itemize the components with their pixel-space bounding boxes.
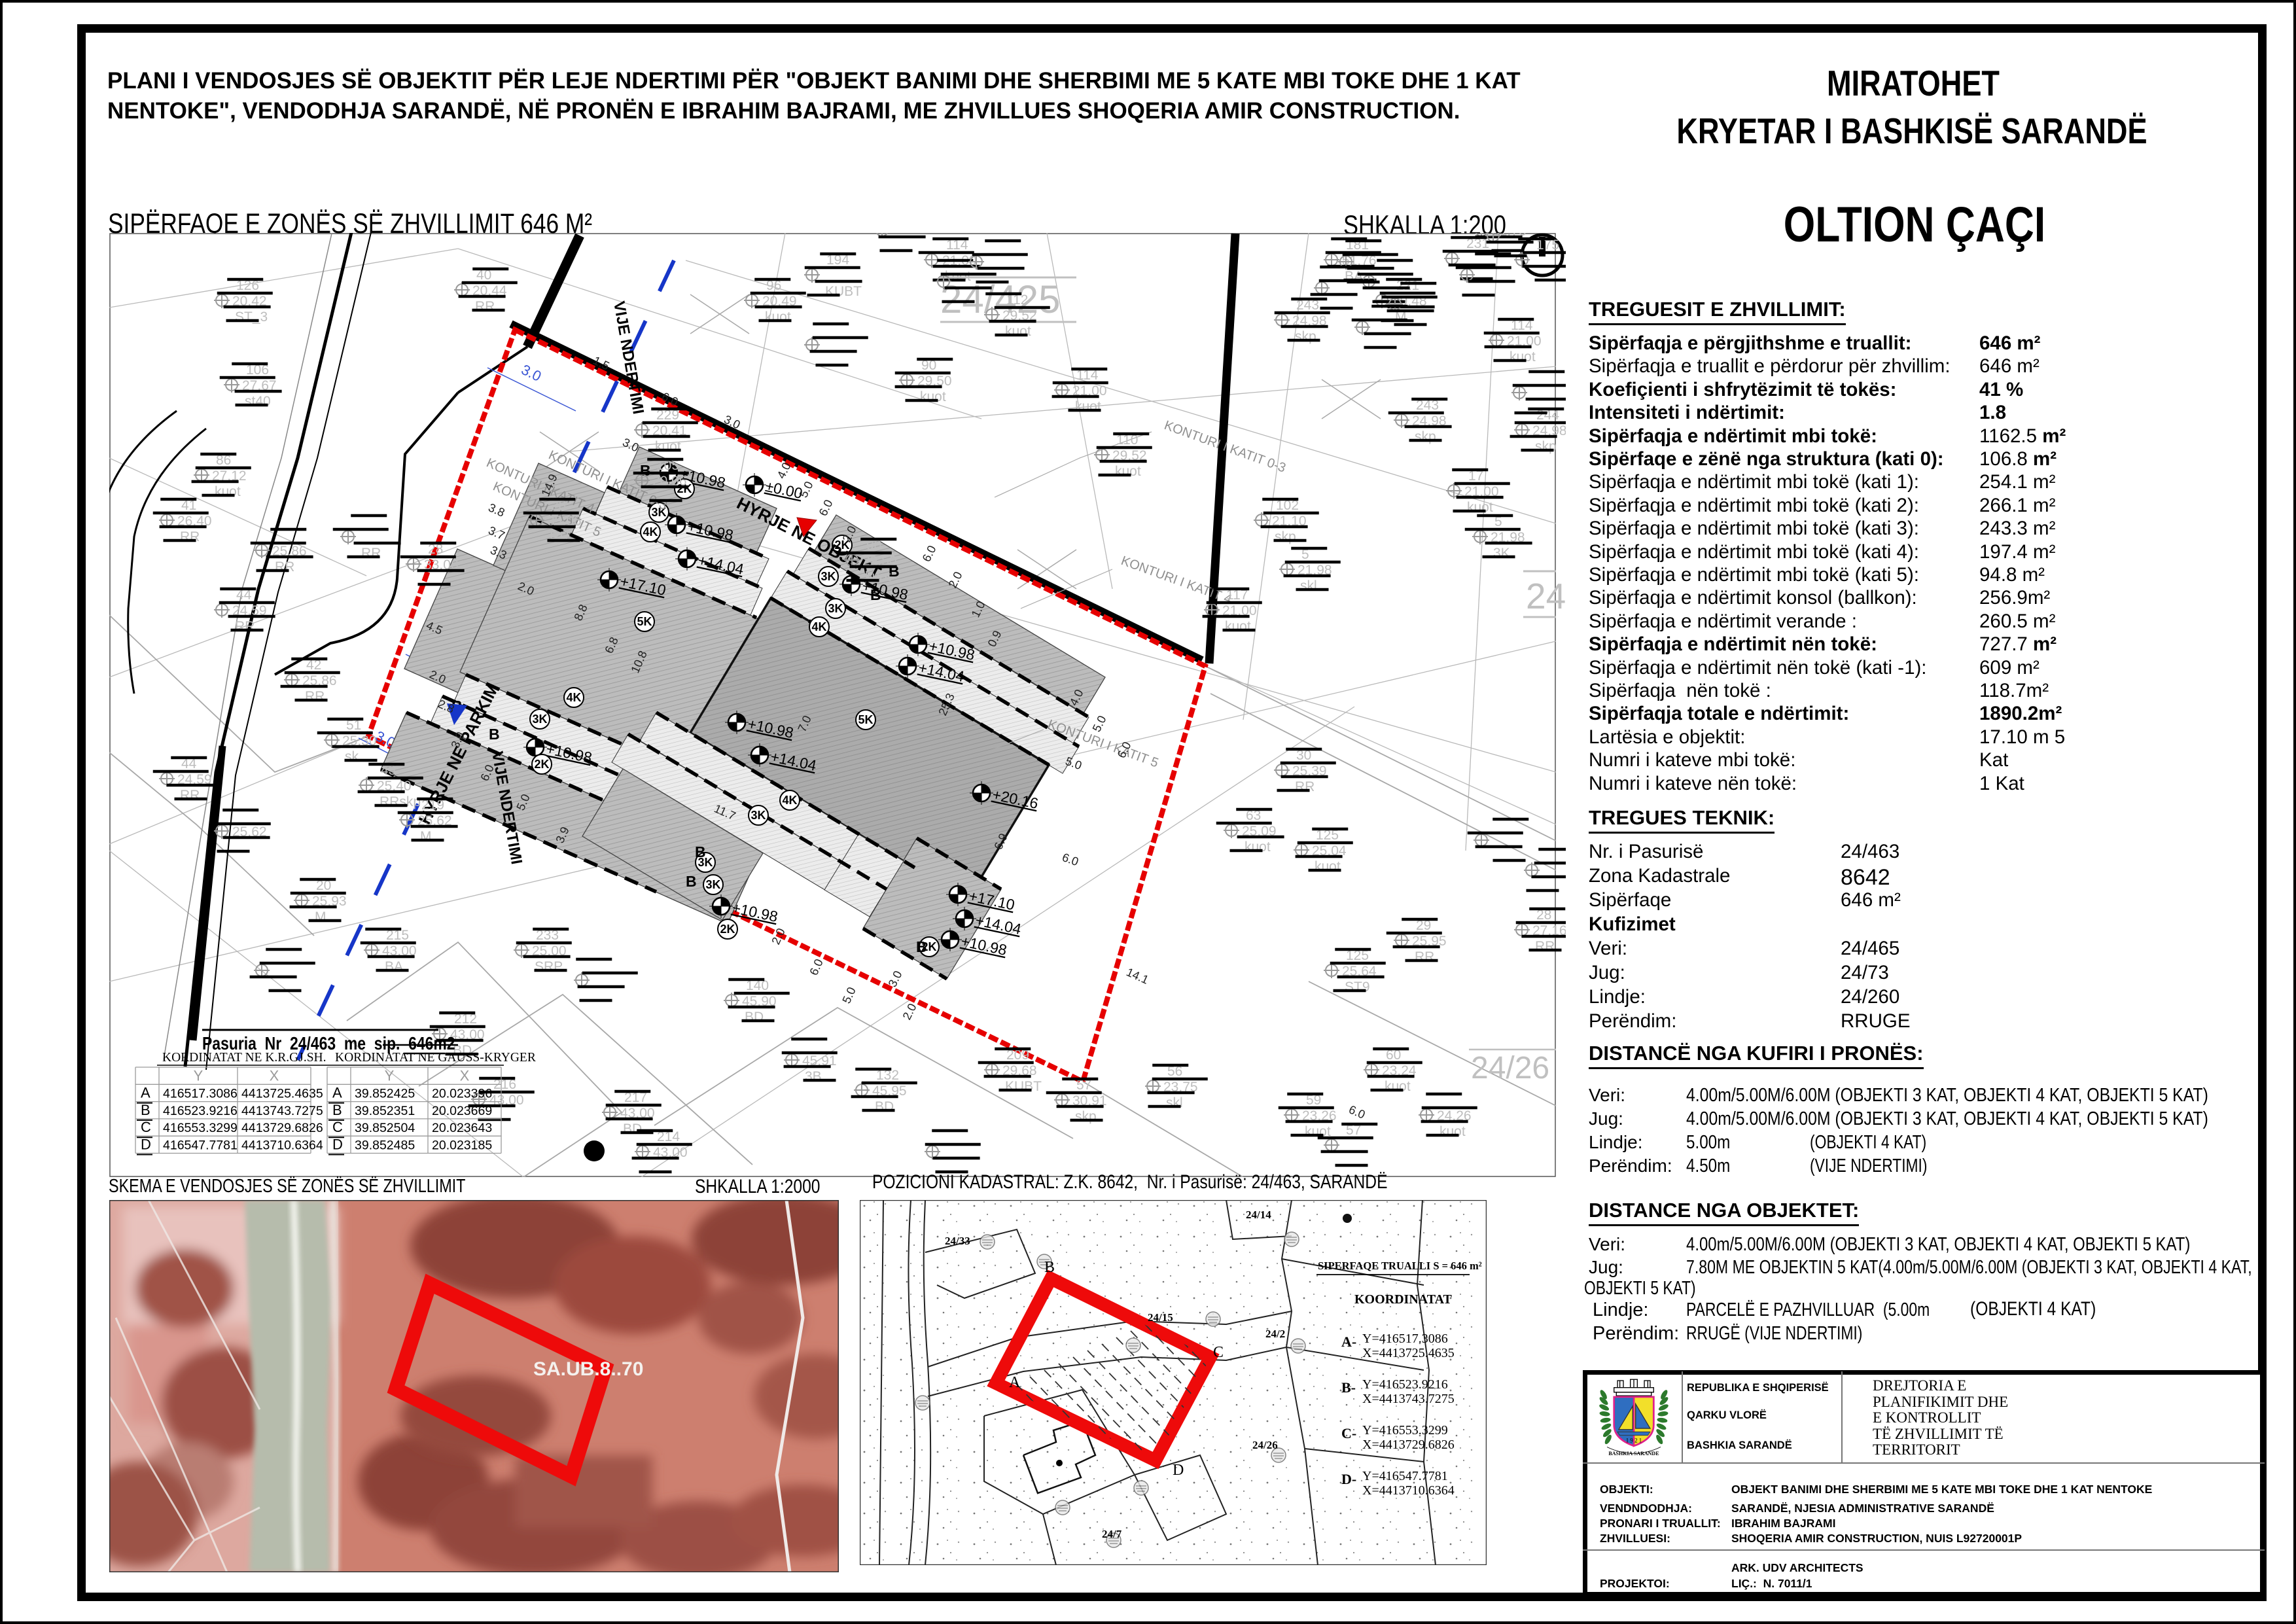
svg-text:KORDINATAT NE GAUSS-KRYGER: KORDINATAT NE GAUSS-KRYGER (335, 1051, 536, 1065)
svg-text:2K: 2K (534, 758, 549, 771)
svg-text:39.852485: 39.852485 (355, 1139, 415, 1153)
svg-text:kuot: kuot (765, 309, 791, 325)
svg-text:kuot: kuot (1510, 349, 1536, 364)
svg-text:kuot: kuot (865, 569, 891, 584)
svg-text:39.852351: 39.852351 (355, 1104, 415, 1118)
svg-text:4413729.6826: 4413729.6826 (241, 1121, 323, 1135)
svg-text:20.023185: 20.023185 (432, 1139, 492, 1153)
svg-text:B-: B- (1341, 1379, 1356, 1396)
svg-text:X=4413729.6826: X=4413729.6826 (1362, 1438, 1455, 1452)
svg-text:4K: 4K (811, 620, 826, 633)
svg-text:C-: C- (1341, 1425, 1356, 1441)
svg-text:RR: RR (180, 788, 200, 803)
svg-text:B: B (489, 726, 500, 743)
svg-text:skp: skp (1535, 439, 1557, 454)
svg-text:KUBT: KUBT (825, 284, 862, 299)
svg-text:24/33: 24/33 (945, 1235, 970, 1247)
svg-text:39.852425: 39.852425 (355, 1087, 415, 1101)
svg-text:kuot: kuot (1385, 1079, 1411, 1094)
svg-text:ST_3: ST_3 (235, 309, 268, 325)
svg-text:BD: BD (623, 1121, 642, 1137)
svg-text:RR: RR (180, 529, 200, 544)
svg-text:416523.9216: 416523.9216 (163, 1104, 238, 1118)
svg-text:X: X (270, 1067, 279, 1084)
svg-text:24/7: 24/7 (1102, 1528, 1122, 1540)
svg-text:X: X (460, 1067, 470, 1084)
svg-text:kuot: kuot (1439, 1124, 1466, 1139)
svg-text:kuot: kuot (215, 484, 241, 499)
svg-text:Y: Y (385, 1067, 395, 1084)
svg-text:M: M (420, 829, 432, 844)
svg-text:B: B (332, 1102, 342, 1118)
svg-text:Y=416523.9216: Y=416523.9216 (1362, 1377, 1448, 1392)
svg-text:B: B (870, 586, 881, 603)
svg-text:KUBT: KUBT (1005, 1079, 1042, 1094)
svg-text:RR: RR (1415, 949, 1434, 964)
svg-text:st40: st40 (245, 394, 271, 409)
svg-text:20.023669: 20.023669 (432, 1104, 492, 1118)
svg-text:416547.7781: 416547.7781 (163, 1139, 238, 1153)
svg-text:kuot: kuot (1315, 859, 1341, 874)
svg-text:B: B (695, 843, 706, 860)
svg-text:A: A (1009, 1374, 1021, 1391)
svg-text:skp: skp (1415, 429, 1436, 444)
svg-text:RR: RR (550, 529, 569, 544)
svg-text:kuot: kuot (920, 389, 946, 404)
svg-text:KORDINATAT NE K.R.GJ.SH.: KORDINATAT NE K.R.GJ.SH. (162, 1051, 327, 1065)
svg-text:kuot: kuot (1075, 399, 1101, 414)
svg-text:skp: skp (1275, 529, 1296, 544)
svg-text:kuot: kuot (1225, 619, 1251, 634)
svg-text:X=4413710.6364: X=4413710.6364 (1362, 1483, 1455, 1498)
svg-text:skp: skp (1295, 329, 1316, 344)
svg-text:Y=416517.3086: Y=416517.3086 (1362, 1332, 1448, 1346)
svg-text:sk: sk (345, 749, 359, 764)
svg-text:3K: 3K (828, 602, 843, 615)
svg-text:C: C (1213, 1344, 1224, 1361)
svg-text:24: 24 (1526, 576, 1566, 616)
svg-text:B: B (141, 1102, 150, 1118)
svg-text:X=4413743.7275: X=4413743.7275 (1362, 1392, 1455, 1406)
svg-text:skl: skl (1300, 578, 1317, 593)
svg-text:24/26: 24/26 (1252, 1439, 1278, 1451)
svg-text:RR: RR (361, 546, 381, 561)
svg-text:3K: 3K (705, 878, 720, 891)
svg-text:3K: 3K (751, 809, 766, 822)
svg-text:A: A (141, 1085, 150, 1101)
svg-text:C: C (332, 1119, 343, 1135)
svg-text:kuot: kuot (1115, 464, 1141, 479)
svg-text:B: B (1044, 1259, 1055, 1276)
svg-text:RR: RR (305, 689, 325, 704)
svg-text:4K: 4K (782, 794, 797, 807)
svg-text:BD: BD (745, 1010, 764, 1025)
svg-text:skl: skl (1166, 1095, 1183, 1110)
svg-text:1 9 2 1: 1 9 2 1 (1626, 1437, 1642, 1443)
svg-text:3B: 3B (805, 1069, 822, 1084)
svg-text:3K: 3K (1493, 546, 1510, 561)
svg-text:X=4413725.4635: X=4413725.4635 (1362, 1346, 1455, 1360)
svg-text:24/2: 24/2 (1265, 1328, 1285, 1340)
svg-text:ST9: ST9 (1345, 980, 1370, 995)
svg-text:RR: RR (1295, 779, 1315, 794)
svg-text:kuot: kuot (1245, 839, 1271, 855)
svg-text:3K: 3K (532, 713, 547, 726)
svg-text:A: A (332, 1085, 342, 1101)
svg-text:416517.3086: 416517.3086 (163, 1087, 238, 1101)
svg-text:BASHKIA SARANDE: BASHKIA SARANDE (1608, 1451, 1659, 1456)
svg-text:2K: 2K (720, 923, 735, 936)
svg-text:M: M (315, 909, 327, 925)
svg-text:4413710.6364: 4413710.6364 (241, 1139, 323, 1153)
svg-text:kuot: kuot (1005, 324, 1031, 339)
svg-text:Y=416553.3299: Y=416553.3299 (1362, 1423, 1448, 1438)
svg-text:24/425: 24/425 (940, 277, 1061, 321)
svg-text:5K: 5K (637, 615, 652, 628)
svg-text:C: C (141, 1119, 151, 1135)
svg-text:RRskp: RRskp (380, 794, 421, 809)
svg-text:SRP: SRP (535, 959, 563, 974)
svg-text:D: D (1173, 1462, 1184, 1479)
svg-text:BA: BA (385, 959, 403, 974)
svg-text:5K: 5K (858, 713, 873, 726)
svg-text:Y=416547.7781: Y=416547.7781 (1362, 1469, 1448, 1483)
svg-text:39.852504: 39.852504 (355, 1121, 415, 1135)
svg-text:416553.3299: 416553.3299 (163, 1121, 238, 1135)
svg-text:Y: Y (194, 1067, 203, 1084)
svg-text:RR: RR (235, 619, 255, 634)
svg-text:RR: RR (275, 559, 294, 574)
svg-text:4K: 4K (643, 525, 658, 538)
svg-text:24/26: 24/26 (1471, 1051, 1549, 1086)
svg-text:4413725.4635: 4413725.4635 (241, 1087, 323, 1101)
svg-text:D-: D- (1341, 1471, 1356, 1487)
svg-text:D: D (141, 1137, 151, 1153)
svg-text:B: B (916, 938, 927, 955)
svg-text:24/14: 24/14 (1246, 1209, 1271, 1221)
svg-text:kuot: kuot (1467, 500, 1493, 515)
svg-text:RR: RR (1535, 939, 1555, 954)
svg-text:A-: A- (1341, 1333, 1356, 1350)
svg-text:20.023643: 20.023643 (432, 1121, 492, 1135)
svg-text:D: D (332, 1137, 343, 1153)
svg-text:SIPERFAQE TRUALLI S = 646 m²: SIPERFAQE TRUALLI S = 646 m² (1318, 1260, 1482, 1272)
svg-text:KOORDINATAT: KOORDINATAT (1354, 1292, 1453, 1307)
svg-text:3K: 3K (821, 570, 836, 583)
svg-text:4K: 4K (566, 691, 581, 704)
svg-text:20.023396: 20.023396 (432, 1087, 492, 1101)
svg-text:BD: BD (875, 1099, 894, 1114)
svg-text:SA.UB.8..70: SA.UB.8..70 (533, 1358, 643, 1380)
svg-text:B: B (686, 873, 697, 890)
svg-text:RR: RR (475, 299, 495, 314)
svg-text:skp: skp (1075, 1109, 1097, 1124)
svg-text:24/15: 24/15 (1148, 1311, 1173, 1324)
svg-text:4413743.7275: 4413743.7275 (241, 1104, 323, 1118)
svg-text:kuot: kuot (655, 439, 681, 454)
